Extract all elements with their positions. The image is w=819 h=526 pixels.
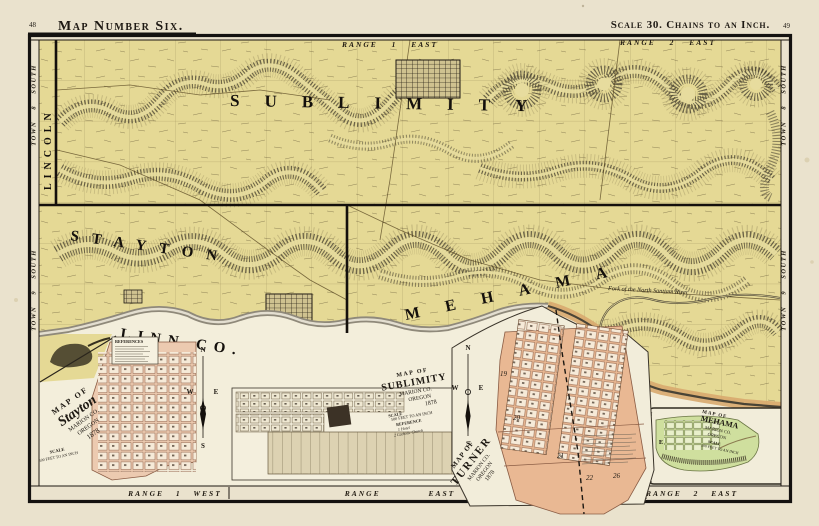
range-label-bottom-center: RANGE EAST [344,489,455,498]
sublimity-college-block [327,405,352,428]
turner-block-26: 26 [613,472,621,480]
compass-w: W [187,388,194,396]
turner-block-22: 22 [586,474,594,482]
compass-w: W [452,384,459,392]
range-label-top-left: RANGE 1 EAST [341,40,438,49]
range-label-bottom-left: RANGE 1 WEST [127,489,222,498]
range-label-bottom-right: RANGE 2 EAST [645,489,738,498]
town-label-left-lower: TOWN 9 SOUTH [31,249,38,331]
town-label-left-upper: TOWN 8 SOUTH [31,64,38,146]
compass-e: E [659,439,663,446]
town-label-right-upper: TOWN 8 SOUTH [781,64,788,146]
compass-n: N [200,346,205,354]
right-page-number: 49 [783,22,791,30]
turner-block-20: 20 [513,414,521,422]
stayton-references-header: REFERENCES [115,339,144,344]
compass-e: E [479,384,484,392]
town-label-right-lower: TOWN 9 SOUTH [781,249,788,331]
inset-mehama: MAP OF MEHAMA MARION CO. OREGON SCALE 50… [647,408,787,484]
compass-n: N [465,344,470,352]
compass-s: S [466,440,470,448]
compass-s: S [201,442,205,450]
page-title: Map Number Six. [58,19,184,34]
compass-e: E [214,388,219,396]
atlas-page: SUBLIMITY STAYTON MEHAMA LINCOLN LINN CO… [0,0,819,526]
township-label-lincoln: LINCOLN [43,108,54,190]
inset-turner: 19 20 21 22 26 MAP OF TURNER MARION CO. … [442,306,654,514]
range-label-top-right: RANGE 2 EAST [619,38,716,47]
atlas-map-svg: SUBLIMITY STAYTON MEHAMA LINCOLN LINN CO… [0,0,819,526]
left-page-number: 48 [29,21,37,29]
turner-block-21: 21 [557,452,564,460]
scale-note: Scale 30. Chains to an Inch. [611,19,770,31]
turner-block-19: 19 [500,370,508,378]
